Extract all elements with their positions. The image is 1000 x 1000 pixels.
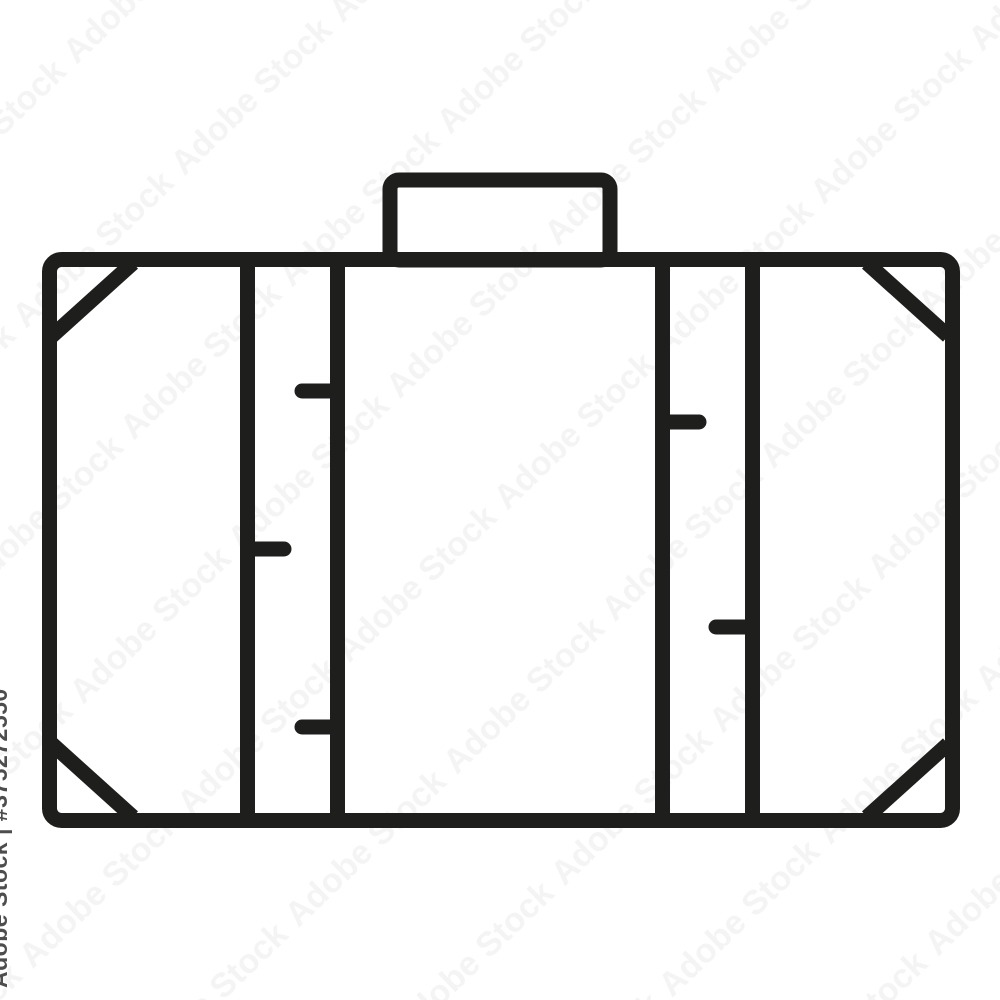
- stock-id-watermark: Adobe Stock | #375272550: [0, 688, 13, 988]
- ghost-watermark-layer: [0, 0, 1000, 1000]
- stock-image-canvas: Adobe Stock: [0, 0, 1000, 1000]
- suitcase-icon: Adobe Stock: [0, 0, 1000, 1000]
